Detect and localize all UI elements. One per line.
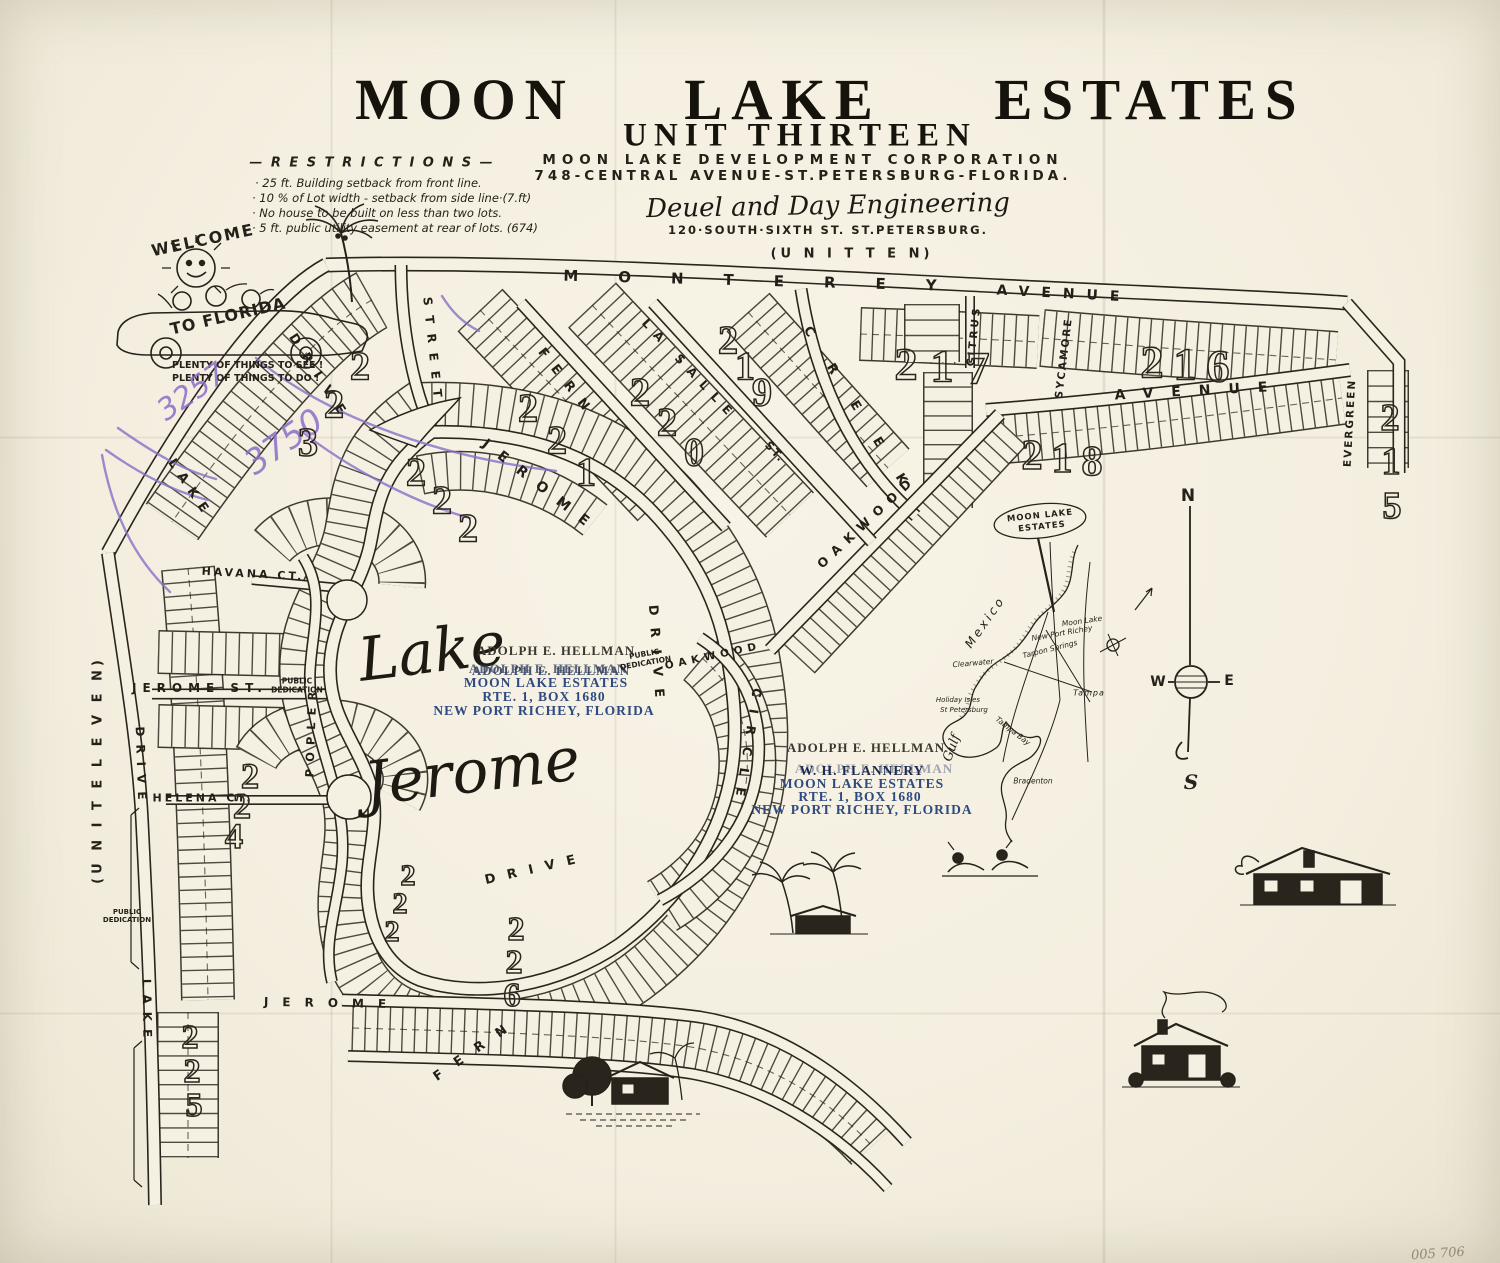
unit-ten-note: (U N I T T E N) <box>771 247 934 262</box>
block-number-222: 2 <box>406 449 426 496</box>
compass-w: W <box>1150 674 1165 690</box>
block-number-221: 1 <box>576 449 596 496</box>
subtitle-unit-thirteen: UNIT THIRTEEN <box>623 118 977 155</box>
street-label-pd3: PUBLICDEDICATION <box>103 908 151 924</box>
illustration-smoke-house <box>1122 992 1240 1087</box>
street-label-pd2: PUBLICDEDICATION <box>271 677 323 694</box>
engineer-name: Deuel and Day Engineering <box>646 188 1010 224</box>
block-number-216: 2 <box>1141 336 1164 389</box>
block-number-217: 2 <box>895 338 918 391</box>
block-number-222: 2 <box>432 477 452 524</box>
sun-icon <box>177 249 215 287</box>
street-label-jerome-bottom: JEROME <box>264 995 400 1011</box>
block-number-217: 1 <box>931 340 954 393</box>
illustration-loungers <box>942 840 1038 876</box>
block-number-216: 6 <box>1207 340 1230 393</box>
block-number-221: 2 <box>518 385 538 432</box>
block-number-226: 6 <box>504 977 521 1015</box>
street-label-line: DEDICATION <box>271 686 323 695</box>
plat-map-sheet: MOON LAKE ESTATES UNIT THIRTEEN MOON LAK… <box>0 0 1500 1263</box>
block-number-222: 2 <box>385 915 400 949</box>
inset-label-bradenton: Bradenton <box>1013 777 1052 786</box>
inset-label-holiday-isles: Holiday Isles <box>936 696 980 704</box>
block-number-221: 2 <box>547 417 567 464</box>
block-number-215: 5 <box>1383 484 1402 528</box>
stamp-printed-name: ADOLPH E. HELLMAN <box>477 643 635 659</box>
bracket-mark <box>134 1041 142 1187</box>
block-number-222: 2 <box>458 505 478 552</box>
block-number-225: 2 <box>184 1053 201 1091</box>
block-number-215: 2 <box>1381 396 1400 440</box>
block-number-218: 2 <box>1022 432 1043 480</box>
illustration-palms-house <box>752 852 868 934</box>
plat-map-drawing <box>0 0 1500 1263</box>
engineer-address: 120·SOUTH·SIXTH ST. ST.PETERSBURG. <box>668 223 988 237</box>
block-number-224: 4 <box>225 815 243 857</box>
illustration-ranch-house <box>1235 848 1396 905</box>
havana-culdesac <box>327 580 367 620</box>
inset-north-arrow <box>1135 588 1152 610</box>
block-number-223: 3 <box>298 419 318 466</box>
block-number-216: 1 <box>1174 338 1197 391</box>
restrictions-heading: — R E S T R I C T I O N S — <box>249 156 494 171</box>
block-number-225: 2 <box>182 1019 199 1057</box>
florida-inset-map <box>943 499 1152 842</box>
street-label-drive-left: DRIVE <box>133 726 150 808</box>
restriction-item: · 10 % of Lot width - setback from side … <box>252 191 531 205</box>
street-label-line: PUBLIC <box>103 908 151 916</box>
restriction-item: · No house to be built on less than two … <box>252 206 502 220</box>
unit-eleven-label: (U N I T E L E V E N) <box>91 656 106 884</box>
corporation-address: 748-CENTRAL AVENUE-ST.PETERSBURG-FLORIDA… <box>534 168 1071 184</box>
compass-e: E <box>1224 673 1234 689</box>
block-number-215: 1 <box>1382 440 1401 484</box>
inset-label-tampa: Tampa <box>1073 689 1105 698</box>
restriction-item: · 25 ft. Building setback from front lin… <box>255 176 482 190</box>
street-label-lake-left: LAKE <box>139 979 154 1046</box>
street-label-jerome-st-label: JEROME ST. <box>132 681 268 695</box>
title-word-estates: ESTATES <box>994 67 1305 133</box>
restriction-item: · 5 ft. public utility easement at rear … <box>252 221 538 235</box>
block-number-220: 2 <box>657 399 677 446</box>
block-number-217: 7 <box>967 342 990 395</box>
compass-s: S <box>1184 770 1198 794</box>
compass-n: N <box>1181 486 1195 506</box>
corporation-name: MOON LAKE DEVELOPMENT CORPORATION <box>542 152 1063 168</box>
block-number-220: 2 <box>630 369 650 416</box>
stamp-line4: NEW PORT RICHEY, FLORIDA <box>433 703 654 719</box>
block-number-219: 9 <box>752 369 772 416</box>
title-word-moon: MOON <box>355 67 575 133</box>
block-number-223: 2 <box>350 343 370 390</box>
block-number-218: 8 <box>1082 438 1103 486</box>
inset-coastline <box>943 545 1078 842</box>
stamp-line4: NEW PORT RICHEY, FLORIDA <box>751 802 972 818</box>
block-number-220: 0 <box>684 429 704 476</box>
block-number-225: 5 <box>186 1087 203 1125</box>
street-label-line: DEDICATION <box>103 916 151 924</box>
stamp-printed-name: ADOLPH E. HELLMAN <box>787 740 945 756</box>
block-number-223: 2 <box>324 381 344 428</box>
inset-label-st-petersburg: St Petersburg <box>940 706 988 714</box>
block-number-218: 1 <box>1052 435 1073 483</box>
compass-rose <box>1168 506 1220 759</box>
